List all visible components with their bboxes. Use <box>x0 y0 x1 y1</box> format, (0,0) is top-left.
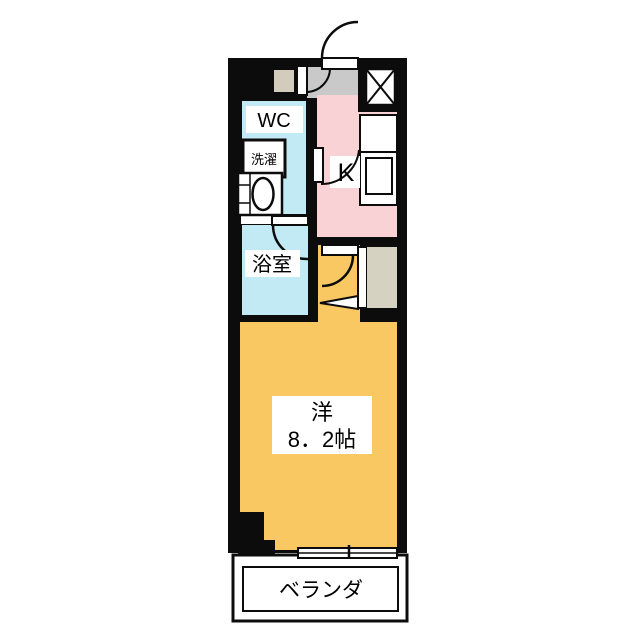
bath-label: 浴室 <box>252 253 292 276</box>
shoe-box <box>273 69 295 93</box>
floor-plan-page: ベランダ K 洗濯 WC 浴室 洋 8．2帖 <box>0 0 640 640</box>
corner-pillar-step <box>238 540 275 554</box>
wc-label: WC <box>257 110 290 132</box>
toilet-bowl-icon <box>253 178 274 210</box>
laundry-label: 洗濯 <box>251 152 277 167</box>
kitchen-sink <box>366 158 392 194</box>
entry-hall <box>307 67 360 98</box>
kitchen-door-leaf <box>313 148 323 182</box>
kitchen-label: K <box>338 159 355 187</box>
entrance-door-leaf <box>322 58 358 69</box>
main-room-name: 洋 <box>311 400 333 425</box>
closet-door <box>358 247 367 308</box>
bath-door-leaf <box>272 216 308 225</box>
balcony-label: ベランダ <box>279 579 363 602</box>
closet <box>367 247 397 308</box>
room-door-leaf <box>322 245 358 255</box>
entry-door-leaf <box>297 66 307 95</box>
floor-plan-drawing: ベランダ K 洗濯 WC 浴室 洋 8．2帖 <box>0 0 640 640</box>
main-room-size: 8．2帖 <box>288 427 356 452</box>
